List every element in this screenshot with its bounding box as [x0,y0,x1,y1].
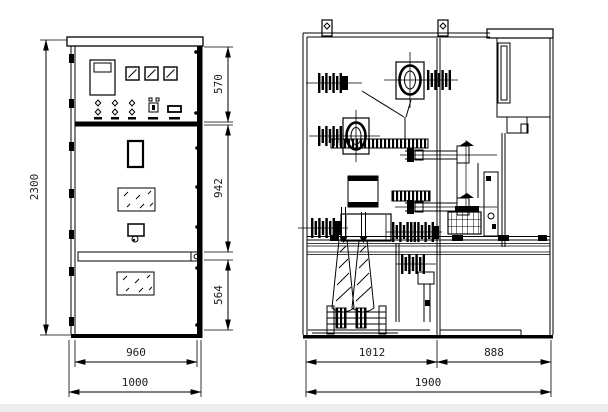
dim-label-942: 942 [212,178,225,198]
lower-bushing [311,218,335,238]
cabinet-base [71,334,203,338]
dim-label-1000: 1000 [122,376,149,389]
drawing-canvas: 2300 570 942 564 960 1000 [0,0,608,412]
branch-insulator [386,222,442,242]
upper-pole-insulator [331,139,428,148]
dim-label-1900: 1900 [415,376,442,389]
bottom-edge-strip [0,404,608,412]
lower-pole-insulator [392,191,430,201]
dim-label-960: 960 [126,346,146,359]
panel-divider [75,122,197,127]
dim-label-2300: 2300 [28,174,41,201]
dim-label-570: 570 [212,74,225,94]
cabinet-floor [303,335,553,339]
paper-background [0,0,608,412]
dim-label-1012: 1012 [359,346,386,359]
right-side-frame [197,46,203,334]
busbar-insulator [318,73,342,93]
dim-label-888: 888 [484,346,504,359]
switchgear-engineering-drawing: 2300 570 942 564 960 1000 [0,0,608,412]
dim-label-564: 564 [212,285,225,305]
